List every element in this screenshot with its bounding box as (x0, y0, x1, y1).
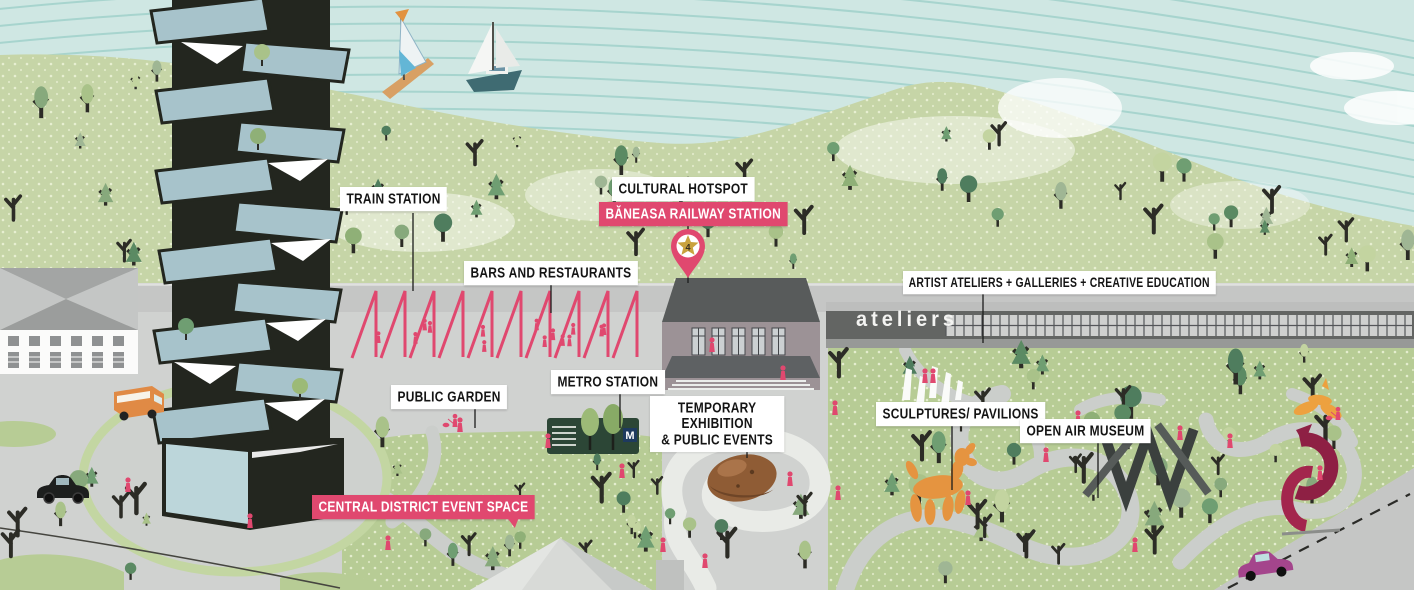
metro-logo-letter: M (625, 430, 634, 442)
person-figure (542, 335, 546, 347)
person-figure (376, 331, 380, 343)
person-figure (482, 340, 486, 352)
residential-tower (151, 0, 349, 530)
person-figure (125, 477, 131, 492)
person-figure (428, 321, 432, 333)
person-figure (835, 485, 841, 500)
person-figure (709, 337, 715, 352)
person-figure (930, 368, 936, 383)
person-figure (413, 332, 417, 344)
person-figure (1132, 537, 1138, 552)
person-figure (619, 463, 625, 478)
person-figure (1227, 433, 1233, 448)
pin-number: 4 (685, 243, 690, 253)
person-figure (1317, 465, 1323, 480)
person-figure (385, 535, 391, 550)
person-figure (247, 513, 253, 528)
person-figure (422, 319, 426, 331)
person-figure (481, 325, 485, 337)
illustrated-masterplan-map: M (0, 0, 1414, 590)
illustration-canvas: M (0, 0, 1414, 590)
person-figure (457, 417, 463, 432)
warehouse-building (0, 268, 138, 374)
ateliers-building (826, 302, 1414, 348)
person-figure (965, 490, 971, 505)
person-figure (560, 334, 564, 346)
person-figure (571, 323, 575, 335)
person-figure (551, 328, 555, 340)
person-figure (545, 433, 551, 448)
person-figure (567, 335, 571, 347)
person-figure (1335, 407, 1340, 420)
person-figure (1043, 447, 1049, 462)
person-figure (780, 365, 786, 380)
person-figure (452, 414, 457, 427)
person-figure (832, 400, 838, 415)
railway-station-building (662, 278, 820, 390)
person-figure (787, 471, 793, 486)
person-figure (922, 368, 928, 383)
person-figure (1075, 410, 1081, 425)
person-figure (599, 325, 603, 337)
person-figure (534, 319, 538, 331)
person-figure (1177, 425, 1183, 440)
person-figure (660, 537, 666, 552)
person-figure (749, 423, 755, 438)
person-figure (702, 553, 708, 568)
